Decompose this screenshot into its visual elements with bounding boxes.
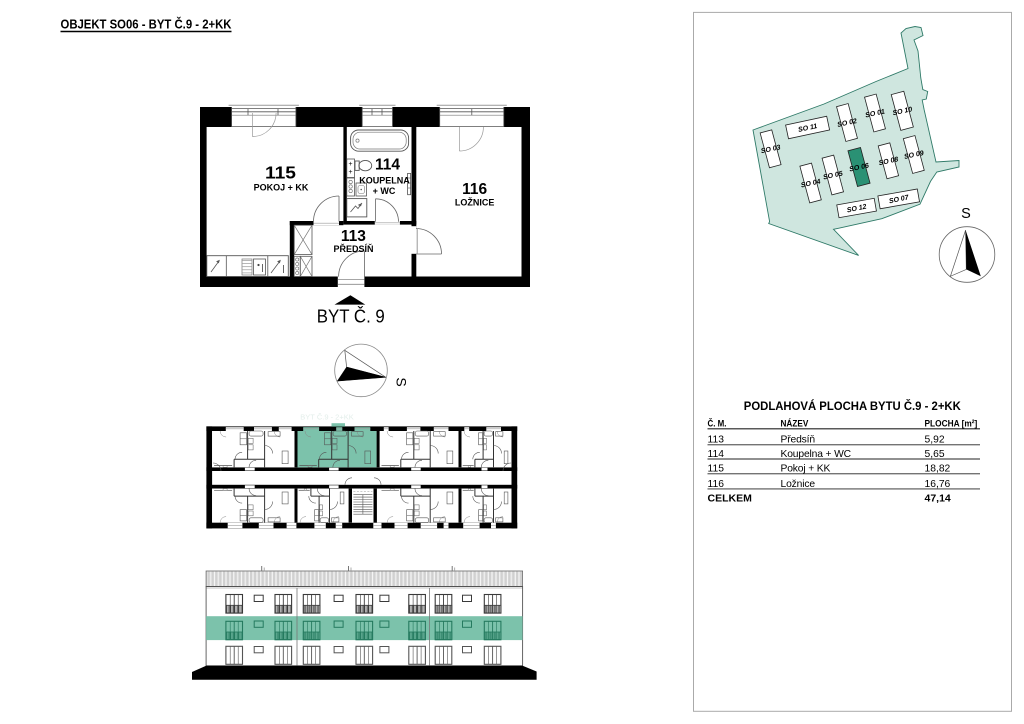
- svg-text:Koupelna + WC: Koupelna + WC: [781, 449, 852, 460]
- svg-text:+: +: [349, 161, 353, 168]
- svg-text:114: 114: [708, 449, 725, 460]
- svg-text:16,76: 16,76: [925, 479, 951, 490]
- svg-text:PODLAHOVÁ PLOCHA BYTU Č.9 - 2+: PODLAHOVÁ PLOCHA BYTU Č.9 - 2+KK: [744, 398, 961, 413]
- svg-text:S: S: [394, 377, 410, 386]
- svg-text:+: +: [349, 169, 353, 176]
- svg-text:18,82: 18,82: [925, 464, 951, 475]
- svg-text:Ložnice: Ložnice: [781, 479, 816, 490]
- svg-text:PLOCHA [m²]: PLOCHA [m²]: [925, 419, 978, 430]
- svg-text:115: 115: [265, 163, 296, 183]
- svg-text:113: 113: [341, 228, 366, 245]
- svg-text:LOŽNICE: LOŽNICE: [455, 197, 495, 208]
- svg-text:Pokoj + KK: Pokoj + KK: [781, 464, 831, 475]
- svg-text:BYT Č.9 - 2+KK: BYT Č.9 - 2+KK: [300, 413, 353, 422]
- svg-text:+ WC: + WC: [373, 186, 396, 196]
- svg-text:114: 114: [375, 157, 400, 174]
- svg-text:113: 113: [708, 435, 725, 446]
- svg-text:S: S: [961, 206, 971, 222]
- svg-text:PŘEDSÍŇ: PŘEDSÍŇ: [333, 243, 373, 254]
- svg-text:Předsíň: Předsíň: [781, 435, 816, 446]
- svg-text:116: 116: [462, 181, 487, 198]
- svg-text:Č. M.: Č. M.: [708, 418, 727, 430]
- svg-text:5,65: 5,65: [925, 449, 945, 460]
- svg-text:NÁZEV: NÁZEV: [781, 418, 809, 430]
- svg-text:5,92: 5,92: [925, 435, 945, 446]
- svg-text:116: 116: [708, 479, 725, 490]
- svg-text:OBJEKT SO06 - BYT Č.9 - 2+KK: OBJEKT SO06 - BYT Č.9 - 2+KK: [61, 17, 232, 32]
- svg-text:POKOJ + KK: POKOJ + KK: [254, 183, 309, 193]
- svg-text:47,14: 47,14: [925, 492, 951, 504]
- svg-text:KOUPELNA: KOUPELNA: [359, 176, 410, 186]
- svg-text:BYT Č. 9: BYT Č. 9: [317, 306, 385, 327]
- svg-text:115: 115: [708, 464, 725, 475]
- svg-text:CELKEM: CELKEM: [708, 492, 753, 504]
